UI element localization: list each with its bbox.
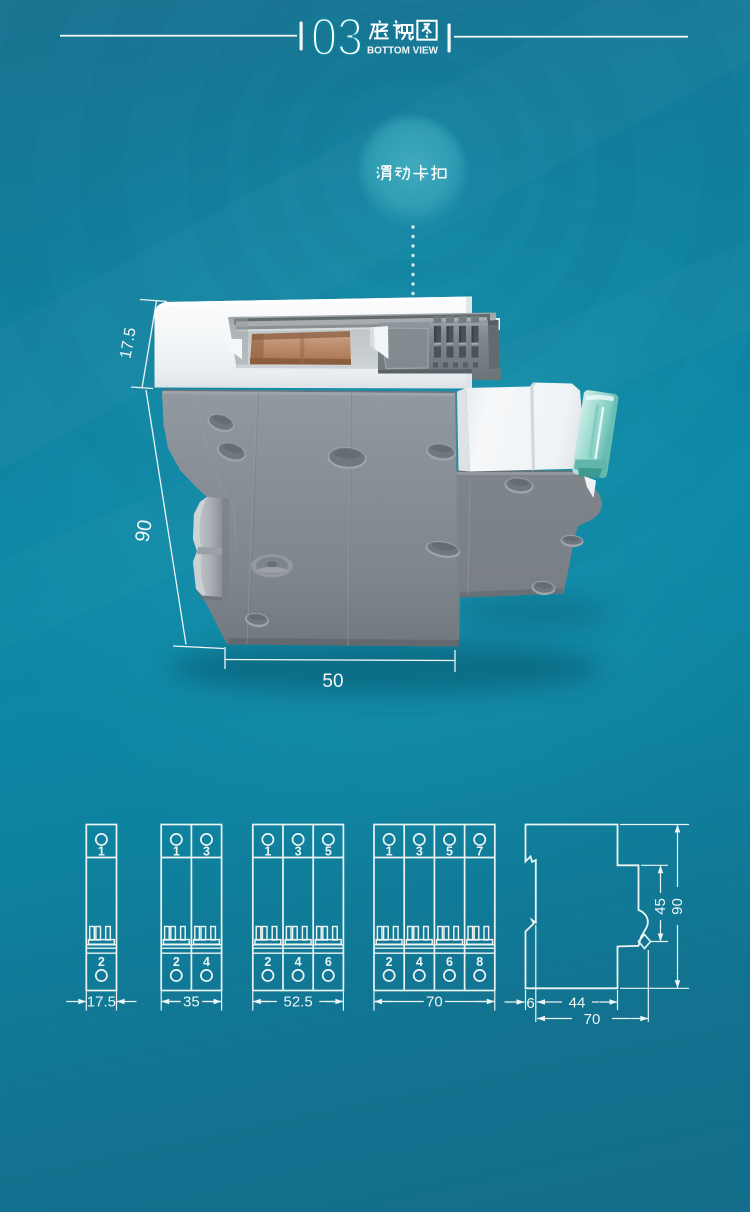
svg-text:50: 50 — [322, 671, 343, 692]
svg-text:90: 90 — [131, 518, 157, 544]
svg-text:70: 70 — [584, 1011, 601, 1028]
svg-text:2: 2 — [98, 955, 105, 969]
svg-text:44: 44 — [569, 995, 586, 1012]
svg-text:1: 1 — [98, 845, 105, 859]
svg-text:4: 4 — [416, 955, 423, 969]
svg-text:3: 3 — [203, 845, 210, 859]
svg-text:3: 3 — [416, 845, 423, 859]
svg-text:17.5: 17.5 — [87, 994, 116, 1011]
svg-text:6: 6 — [526, 995, 534, 1012]
svg-text:1: 1 — [173, 845, 180, 859]
svg-text:8: 8 — [476, 955, 483, 969]
svg-text:6: 6 — [325, 955, 332, 969]
svg-text:2: 2 — [173, 955, 180, 969]
svg-text:35: 35 — [183, 994, 200, 1011]
svg-text:5: 5 — [446, 845, 453, 859]
svg-text:BOTTOM VIEW: BOTTOM VIEW — [367, 46, 439, 57]
svg-text:4: 4 — [203, 955, 210, 969]
svg-text:52.5: 52.5 — [283, 994, 312, 1011]
svg-text:5: 5 — [325, 845, 332, 859]
svg-text:2: 2 — [264, 955, 271, 969]
svg-text:1: 1 — [264, 845, 271, 859]
svg-text:7: 7 — [476, 845, 483, 859]
svg-text:45: 45 — [652, 898, 669, 915]
svg-text:2: 2 — [386, 955, 393, 969]
svg-text:3: 3 — [295, 845, 302, 859]
svg-text:70: 70 — [426, 994, 443, 1011]
svg-text:6: 6 — [446, 955, 453, 969]
svg-text:4: 4 — [295, 955, 302, 969]
svg-text:1: 1 — [386, 845, 393, 859]
svg-text:03: 03 — [311, 8, 363, 67]
svg-text:90: 90 — [669, 898, 686, 915]
